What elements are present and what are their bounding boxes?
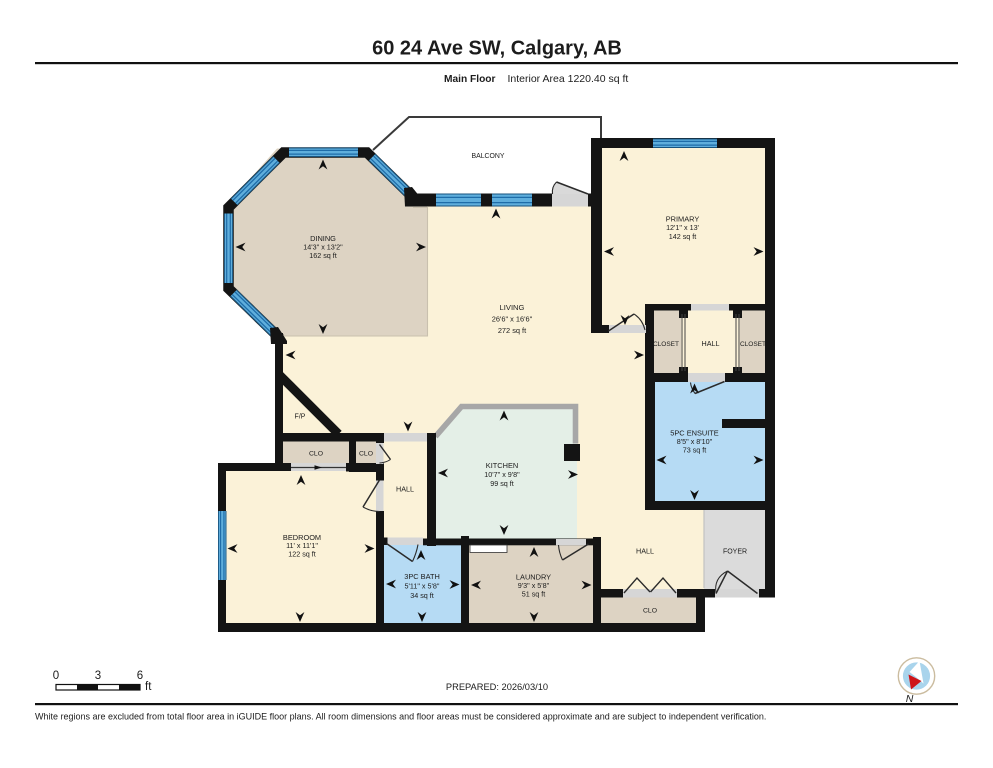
svg-text:0: 0 [53, 670, 59, 682]
svg-text:Interior Area 1220.40 sq ft: Interior Area 1220.40 sq ft [508, 73, 629, 85]
svg-text:Main Floor: Main Floor [444, 74, 496, 85]
svg-text:73 sq ft: 73 sq ft [683, 445, 707, 454]
svg-text:KITCHEN: KITCHEN [486, 461, 518, 470]
svg-text:F/P: F/P [295, 414, 306, 421]
svg-text:5'11" x 5'8": 5'11" x 5'8" [405, 582, 440, 591]
svg-text:HALL: HALL [702, 339, 720, 348]
svg-text:34 sq ft: 34 sq ft [410, 591, 434, 600]
svg-text:51 sq ft: 51 sq ft [522, 590, 546, 599]
svg-text:3: 3 [95, 670, 101, 682]
svg-text:3PC BATH: 3PC BATH [404, 572, 440, 581]
svg-text:12'1" x 13': 12'1" x 13' [666, 223, 699, 232]
svg-text:CLO: CLO [309, 451, 323, 458]
svg-text:BALCONY: BALCONY [472, 153, 505, 160]
svg-text:CLO: CLO [359, 451, 373, 458]
svg-text:6: 6 [137, 670, 143, 682]
svg-text:PRIMARY: PRIMARY [666, 215, 700, 224]
svg-text:LIVING: LIVING [500, 303, 525, 312]
svg-text:HALL: HALL [636, 547, 654, 556]
svg-text:HALL: HALL [396, 485, 414, 494]
svg-text:ft: ft [145, 681, 152, 693]
svg-text:FOYER: FOYER [723, 549, 747, 556]
svg-text:White regions are excluded fro: White regions are excluded from total fl… [35, 712, 766, 722]
svg-text:162 sq ft: 162 sq ft [309, 251, 337, 260]
svg-text:CLO: CLO [643, 608, 657, 615]
svg-text:CLOSET: CLOSET [653, 341, 679, 348]
svg-text:CLOSET: CLOSET [740, 341, 766, 348]
svg-text:272 sq ft: 272 sq ft [498, 326, 526, 335]
svg-text:10'7" x 9'8": 10'7" x 9'8" [484, 470, 520, 479]
svg-text:60 24 Ave SW, Calgary, AB: 60 24 Ave SW, Calgary, AB [372, 38, 622, 60]
svg-text:99 sq ft: 99 sq ft [490, 479, 514, 488]
svg-text:26'6" x 16'6": 26'6" x 16'6" [492, 315, 533, 324]
svg-text:142 sq ft: 142 sq ft [669, 232, 697, 241]
svg-text:PREPARED: 2026/03/10: PREPARED: 2026/03/10 [446, 682, 548, 692]
svg-text:122 sq ft: 122 sq ft [288, 549, 316, 558]
